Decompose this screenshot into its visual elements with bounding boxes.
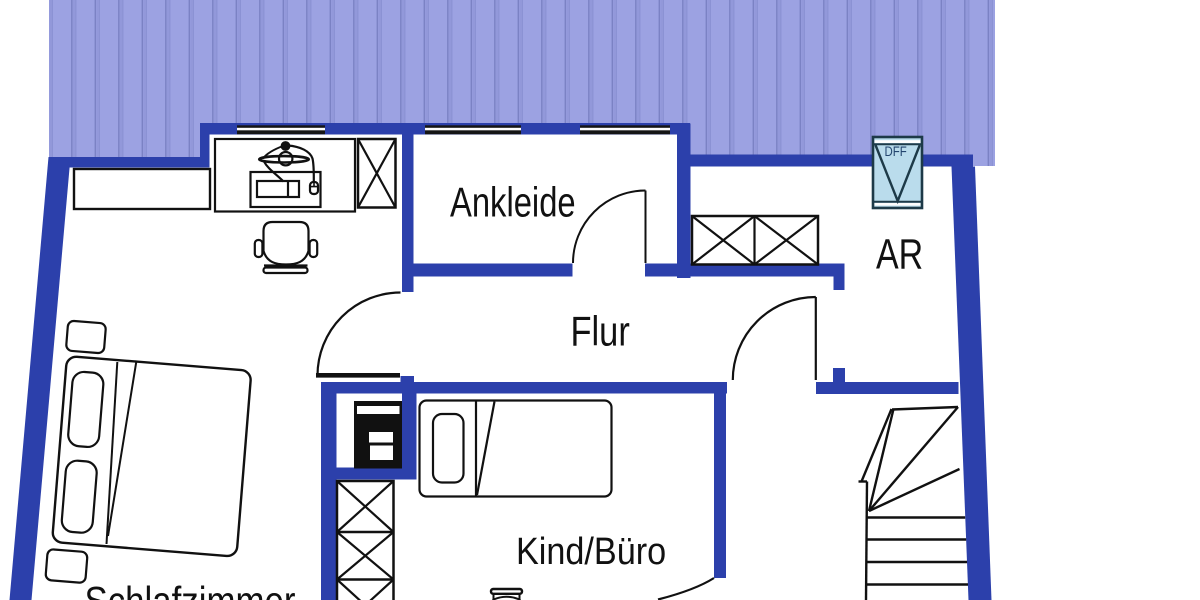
svg-text:Ankleide: Ankleide [450,179,576,226]
svg-text:Schlafzimmer: Schlafzimmer [85,579,296,600]
svg-text:Kind/Büro: Kind/Büro [516,529,666,572]
svg-text:Flur: Flur [571,308,630,355]
svg-text:AR: AR [876,231,923,279]
svg-text:DFF: DFF [885,144,908,159]
